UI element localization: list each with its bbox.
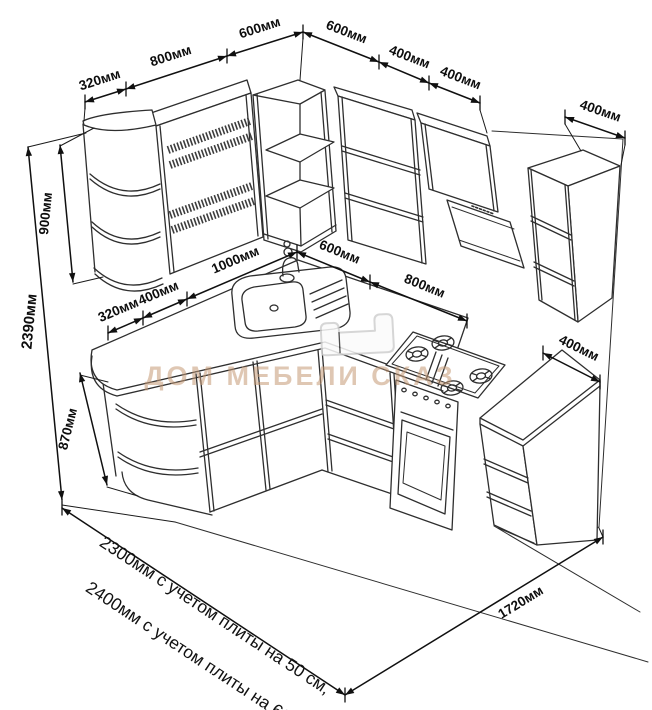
dimension-arrowhead: [85, 96, 95, 102]
dimension-arrowhead: [369, 56, 379, 62]
dim-top-320: 320мм: [77, 66, 122, 93]
dimension-arrowhead: [615, 132, 625, 138]
dimension-arrowhead: [360, 276, 370, 282]
dim-wall-cab-900: 900мм: [36, 192, 55, 236]
side-base-cabinet: [480, 350, 600, 545]
dimension-arrowhead: [293, 32, 303, 38]
wall-cabinet-right-open: [528, 150, 620, 322]
dimension-arrowhead: [336, 687, 345, 695]
wall-cabinet-open-1: [334, 87, 426, 264]
dimension-arrowhead: [177, 299, 187, 306]
dim-top-400-b: 400мм: [438, 63, 483, 92]
rounded-end-shelves-base: [103, 383, 212, 515]
dimension-arrowhead: [345, 688, 354, 695]
dimension-arrowhead: [133, 318, 143, 324]
dim-top-600-right: 600мм: [324, 17, 369, 46]
dimension-arrowhead: [217, 56, 227, 62]
dim-counter-800: 800мм: [402, 271, 447, 301]
dimension-arrowhead: [297, 252, 307, 258]
range-hood: [447, 200, 524, 268]
dimension-arrowhead: [227, 50, 237, 56]
dimension-arrowhead: [303, 32, 313, 38]
kitchen-technical-drawing: ДОМ МЕБЕЛИ СКАЗ: [0, 0, 652, 710]
dimension-arrowhead: [379, 62, 389, 68]
dim-right-wall-400: 400мм: [578, 97, 623, 125]
dimension-arrowhead: [470, 97, 480, 103]
corner-wall-cabinet: [253, 80, 336, 252]
dimension-arrowhead: [565, 117, 575, 123]
dim-top-800: 800мм: [148, 42, 193, 69]
rounded-end-shelves-upper: [83, 110, 163, 291]
dim-top-600-left: 600мм: [237, 14, 282, 41]
watermark-text: ДОМ МЕБЕЛИ СКАЗ: [144, 361, 455, 391]
dimension-arrowhead: [102, 476, 108, 485]
dimension-arrowhead: [62, 508, 71, 516]
dimension-arrowhead: [126, 83, 136, 89]
dimension-arrowhead: [429, 83, 439, 89]
dimension-arrowhead: [187, 293, 197, 299]
dim-counter-400: 400мм: [136, 278, 181, 308]
dish-rack-cabinet: [151, 80, 263, 274]
dim-base-870: 870мм: [55, 406, 80, 451]
dim-counter-320: 320мм: [96, 295, 141, 325]
dimension-arrowhead: [116, 89, 126, 95]
kitchen-drawing-page: ДОМ МЕБЕЛИ СКАЗ: [0, 0, 652, 710]
dimension-arrowhead: [79, 373, 85, 382]
dim-top-400-a: 400мм: [387, 42, 432, 71]
base-open-cabinets-right-run: [322, 373, 402, 497]
dimension-arrowhead: [143, 311, 153, 318]
dimension-arrowhead: [419, 77, 429, 83]
oven: [390, 380, 458, 530]
dimension-arrowhead: [108, 327, 118, 333]
dim-total-height-2390: 2390мм: [18, 293, 40, 350]
dim-floor-1720: 1720мм: [495, 583, 545, 622]
